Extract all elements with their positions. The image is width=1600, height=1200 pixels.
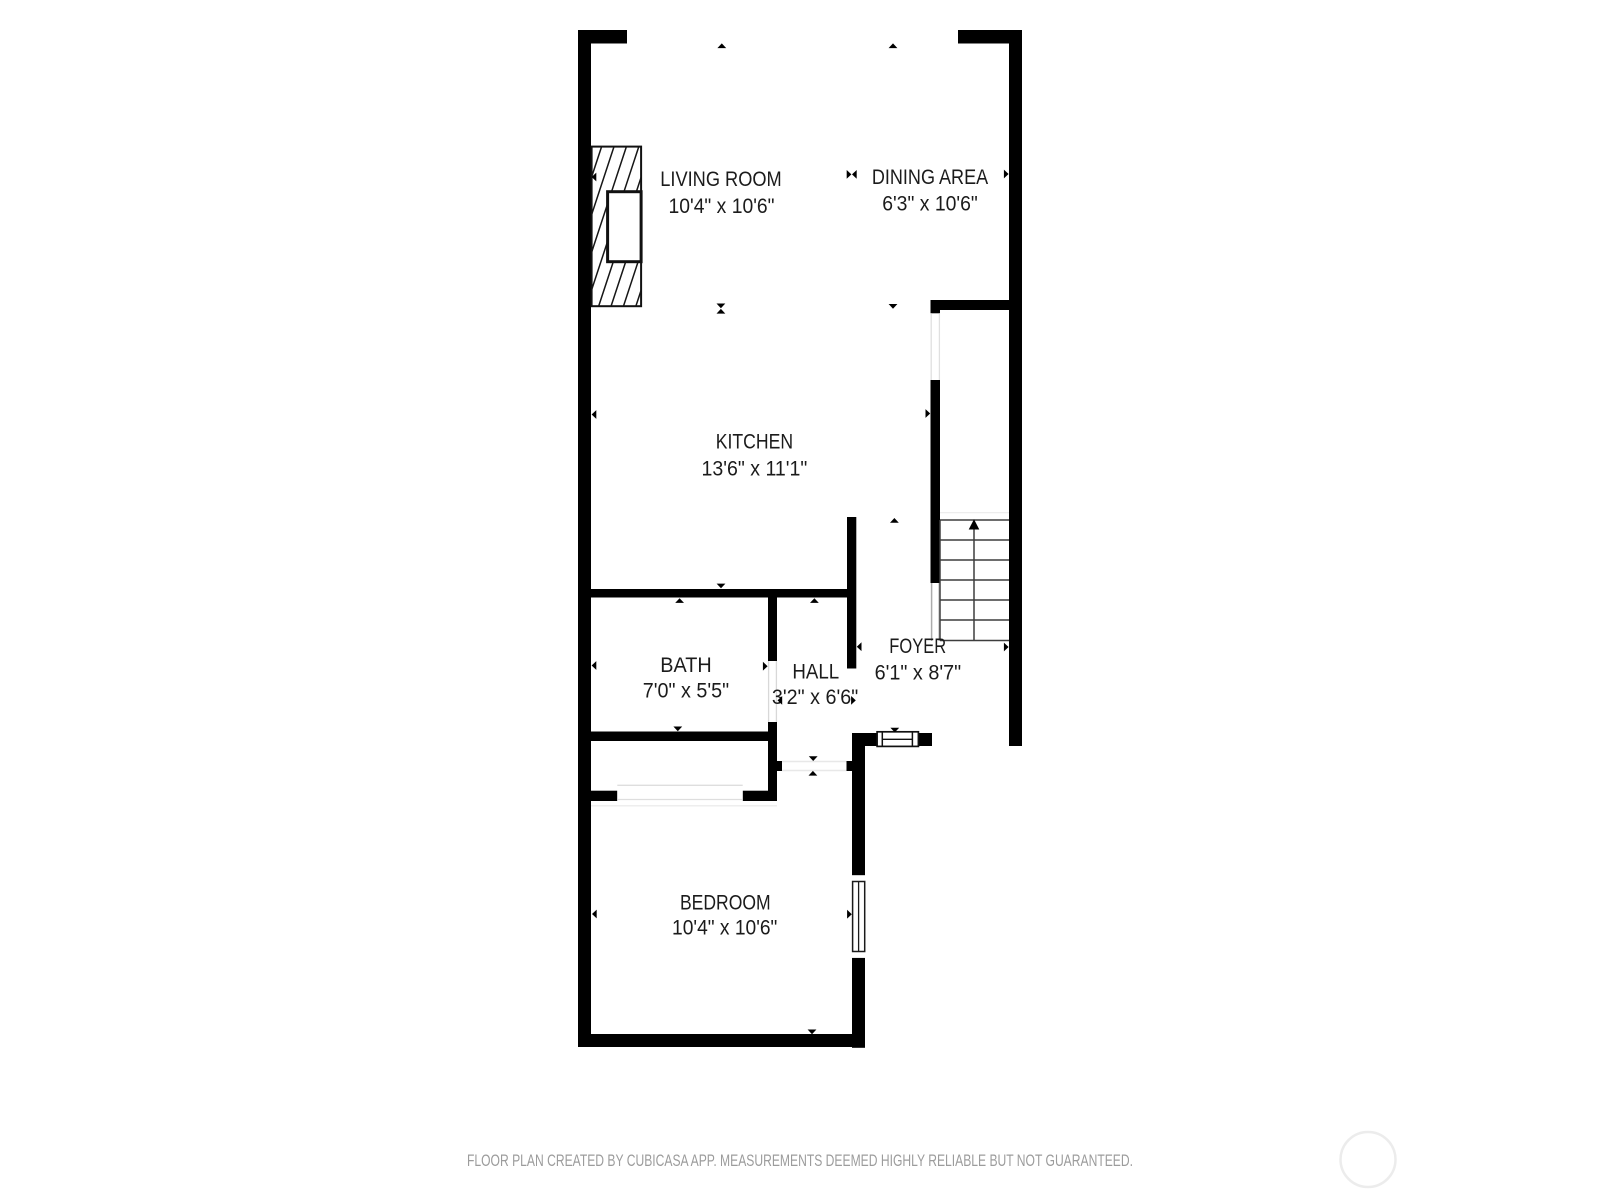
svg-text:KITCHEN: KITCHEN (716, 431, 793, 454)
svg-text:10'4" x 10'6": 10'4" x 10'6" (669, 195, 775, 218)
svg-text:FOYER: FOYER (889, 635, 946, 658)
svg-text:DINING AREA: DINING AREA (872, 166, 988, 189)
svg-text:HALL: HALL (792, 661, 839, 684)
svg-text:LIVING ROOM: LIVING ROOM (660, 168, 782, 191)
svg-text:13'6" x 11'1": 13'6" x 11'1" (702, 458, 808, 481)
svg-text:10'4" x 10'6": 10'4" x 10'6" (672, 917, 777, 940)
svg-text:6'3" x 10'6": 6'3" x 10'6" (882, 192, 978, 215)
svg-text:BEDROOM: BEDROOM (680, 891, 771, 914)
svg-text:3'2" x 6'6": 3'2" x 6'6" (772, 686, 858, 709)
svg-text:FLOOR PLAN CREATED BY CUBICASA: FLOOR PLAN CREATED BY CUBICASA APP. MEAS… (467, 1151, 1133, 1170)
svg-text:6'1" x 8'7": 6'1" x 8'7" (875, 662, 962, 685)
svg-text:BATH: BATH (660, 654, 711, 677)
svg-text:7'0" x 5'5": 7'0" x 5'5" (643, 680, 729, 703)
